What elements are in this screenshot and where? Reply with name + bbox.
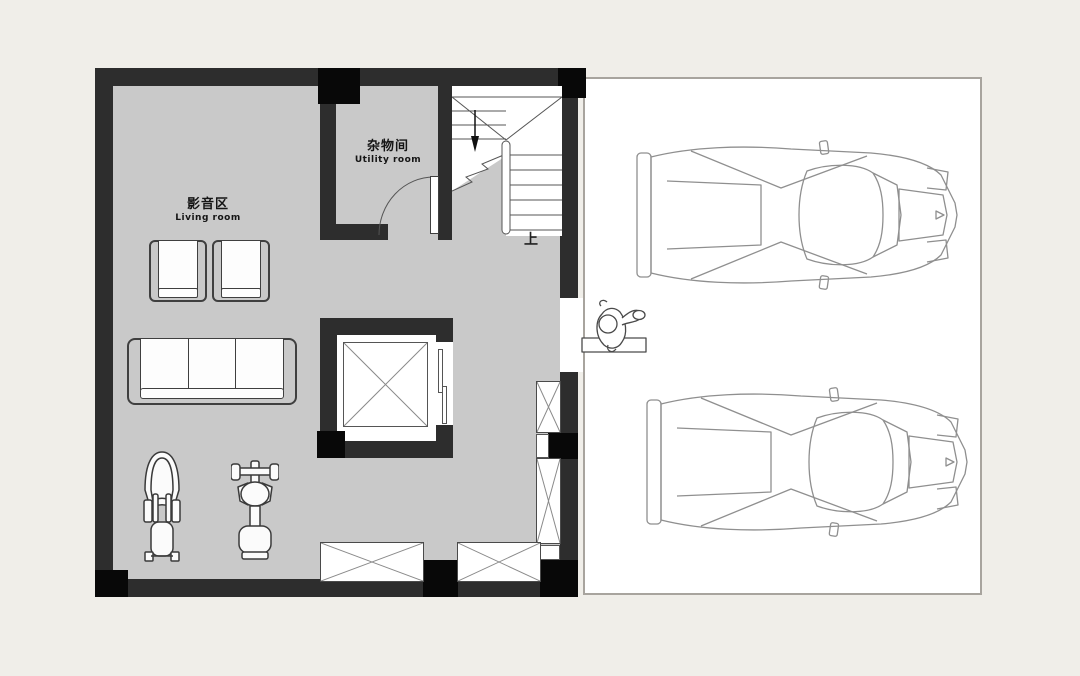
right-wall-xbox-1 [536,381,561,433]
armchair-2 [212,240,270,302]
garage-cars [583,77,982,595]
utility-room-label-zh: 杂物间 [328,139,448,155]
exercise-bike [139,448,185,564]
weight-bench [231,460,279,562]
utility-door-leaf [430,176,439,234]
column-top-right [558,68,586,98]
floor-plan: 上 影音区 Living room 杂物间 Utility room [0,0,1080,676]
staircase [452,86,562,252]
bottom-wall-xbox-2 [457,542,541,582]
utility-room-label: 杂物间 Utility room [328,139,448,167]
elevator-car-symbol [343,342,428,427]
right-wall-xbox-2 [536,458,561,544]
bottom-wall-xbox-1 [320,542,424,582]
armchair-1 [149,240,207,302]
elevator-corner-column [317,431,345,458]
column-bottom-right [540,560,578,597]
utility-door-arc [377,175,435,237]
right-wall-small-box [536,434,549,458]
wall-right-upper [560,86,578,298]
stairs-up-label: 上 [524,229,538,249]
column-bottom-left [95,570,128,597]
right-wall-lower-box [540,545,560,560]
living-room-label: 影音区 Living room [148,197,268,225]
living-room-label-zh: 影音区 [148,197,268,213]
wall-left [95,68,113,597]
living-room-label-en: Living room [148,213,268,224]
elevator-door-panel-2 [442,386,447,424]
utility-room-label-en: Utility room [328,155,448,166]
column-right-wall [548,433,578,459]
column-top-mid [318,68,360,104]
column-bottom-mid [423,560,458,597]
three-seat-sofa [127,338,297,405]
